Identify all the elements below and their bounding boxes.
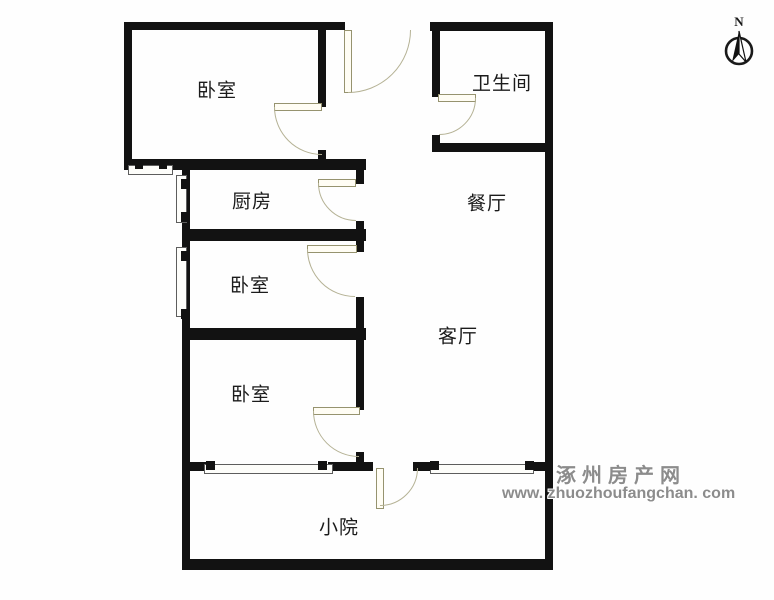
floor-plan-canvas: 卧室 卫生间 厨房 餐厅 卧室 客厅 卧室 小院 N 涿州房产网 www. zh… <box>0 0 774 600</box>
window-living-room-post-right <box>525 461 534 470</box>
kitchen-door-swing-arc <box>318 183 356 221</box>
wall-bedroom-middle-bottom <box>182 328 366 340</box>
watermark-site-name: 涿州房产网 <box>556 459 686 488</box>
north-arrow-icon <box>722 29 756 67</box>
room-label-kitchen: 厨房 <box>232 187 272 214</box>
window-bedroom-middle-post-bottom <box>181 309 189 319</box>
wall-bathroom-bottom <box>432 143 553 152</box>
wall-mid-stub-4 <box>356 297 364 330</box>
wall-outer-bottom <box>182 559 553 570</box>
window-bedroom-top-post-left <box>135 161 143 169</box>
room-label-bedroom-top: 卧室 <box>197 76 237 103</box>
room-label-bedroom-bottom: 卧室 <box>231 380 271 407</box>
room-label-living: 客厅 <box>438 322 478 349</box>
wall-bedroom-bottom-right <box>356 340 364 410</box>
compass-north-label: N <box>717 15 761 28</box>
window-bedroom-bottom <box>204 464 333 474</box>
room-label-bathroom: 卫生间 <box>472 69 532 96</box>
bedroom-bottom-door-swing-arc <box>313 411 359 457</box>
window-living-room <box>430 464 534 474</box>
watermark-site-url: www. zhuozhoufangchan. com <box>502 485 735 503</box>
window-kitchen-post-bottom <box>181 212 189 222</box>
compass: N <box>717 15 761 67</box>
wall-top-left <box>124 22 345 30</box>
room-label-bedroom-middle: 卧室 <box>230 271 270 298</box>
bedroom-top-door-swing-arc <box>274 107 322 155</box>
room-label-dining: 餐厅 <box>467 189 507 216</box>
wall-bedroom-top-right <box>318 30 326 107</box>
wall-mid-stub-3 <box>356 241 364 252</box>
entry-door-swing-arc <box>348 30 411 93</box>
wall-mid-stub-2 <box>356 221 364 233</box>
wall-top-right <box>430 22 553 31</box>
room-label-courtyard: 小院 <box>319 513 359 540</box>
bathroom-door-swing-arc <box>439 98 476 135</box>
window-living-room-post-left <box>430 461 439 470</box>
courtyard-door-swing-arc <box>380 468 418 506</box>
window-bedroom-top-post-right <box>159 161 167 169</box>
wall-bottom-seg-b <box>328 462 373 471</box>
wall-bathroom-left <box>432 31 440 97</box>
wall-lower-left <box>182 332 190 570</box>
window-kitchen-post-top <box>181 179 189 189</box>
wall-bedroom-top-left <box>124 22 132 167</box>
bedroom-middle-door-swing-arc <box>307 249 355 297</box>
window-bedroom-bottom-post-right <box>318 461 327 470</box>
wall-kitchen-bottom <box>182 229 366 241</box>
wall-mid-stub-1 <box>356 170 364 184</box>
window-bedroom-bottom-post-left <box>206 461 215 470</box>
window-bedroom-middle-post-top <box>181 251 189 261</box>
